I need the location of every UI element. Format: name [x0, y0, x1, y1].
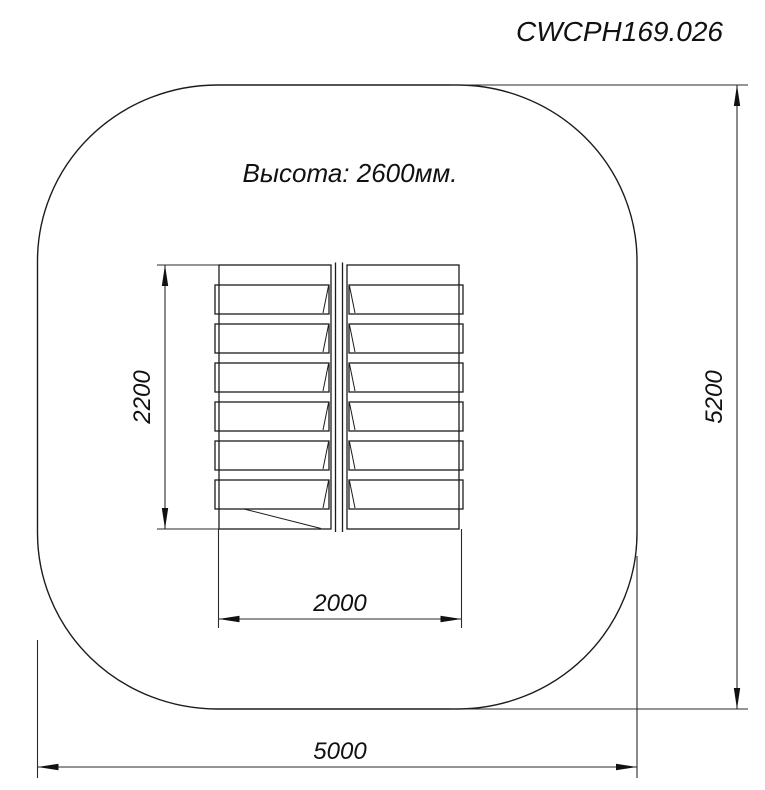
slat — [215, 285, 329, 314]
left-slats — [215, 285, 329, 529]
technical-drawing-page: CWCPH169.026 Высота: 2600мм. — [0, 0, 765, 790]
left-slat-bevels — [323, 286, 329, 508]
left-panel-frame — [219, 265, 331, 529]
arrowhead-down — [162, 508, 168, 529]
center-post — [336, 263, 343, 533]
slat — [349, 441, 463, 470]
arrowhead-left — [219, 616, 240, 622]
slat — [349, 285, 463, 314]
slat — [215, 324, 329, 353]
right-panel-frame — [347, 265, 459, 529]
dimension-label: 5000 — [313, 738, 367, 765]
slat — [349, 480, 463, 509]
slat — [349, 324, 463, 353]
arrowhead-right — [616, 764, 637, 770]
right-slat-bevels — [350, 286, 356, 508]
arrowhead-up — [162, 265, 168, 286]
arrowhead-down — [734, 688, 740, 709]
equipment-plan — [215, 263, 463, 533]
dimension-label: 2000 — [312, 590, 367, 617]
dimension-2000: 2000 — [219, 529, 462, 628]
arrowhead-up — [734, 85, 740, 106]
slat — [215, 480, 329, 509]
slat — [349, 363, 463, 392]
dimension-label: 2200 — [129, 370, 156, 425]
height-note: Высота: 2600мм. — [243, 158, 458, 188]
arrowhead-right — [441, 616, 462, 622]
drawing-code: CWCPH169.026 — [516, 16, 723, 47]
slat — [215, 402, 329, 431]
playground-plan-drawing: CWCPH169.026 Высота: 2600мм. — [0, 0, 765, 790]
slat — [215, 441, 329, 470]
ramp-diagonal — [244, 509, 321, 529]
slat — [349, 402, 463, 431]
slat — [215, 363, 329, 392]
dimension-label: 5200 — [701, 370, 728, 424]
arrowhead-left — [38, 764, 59, 770]
dimension-2200: 2200 — [129, 265, 219, 529]
dimension-5200: 5200 — [450, 85, 748, 709]
right-slats — [349, 285, 463, 509]
